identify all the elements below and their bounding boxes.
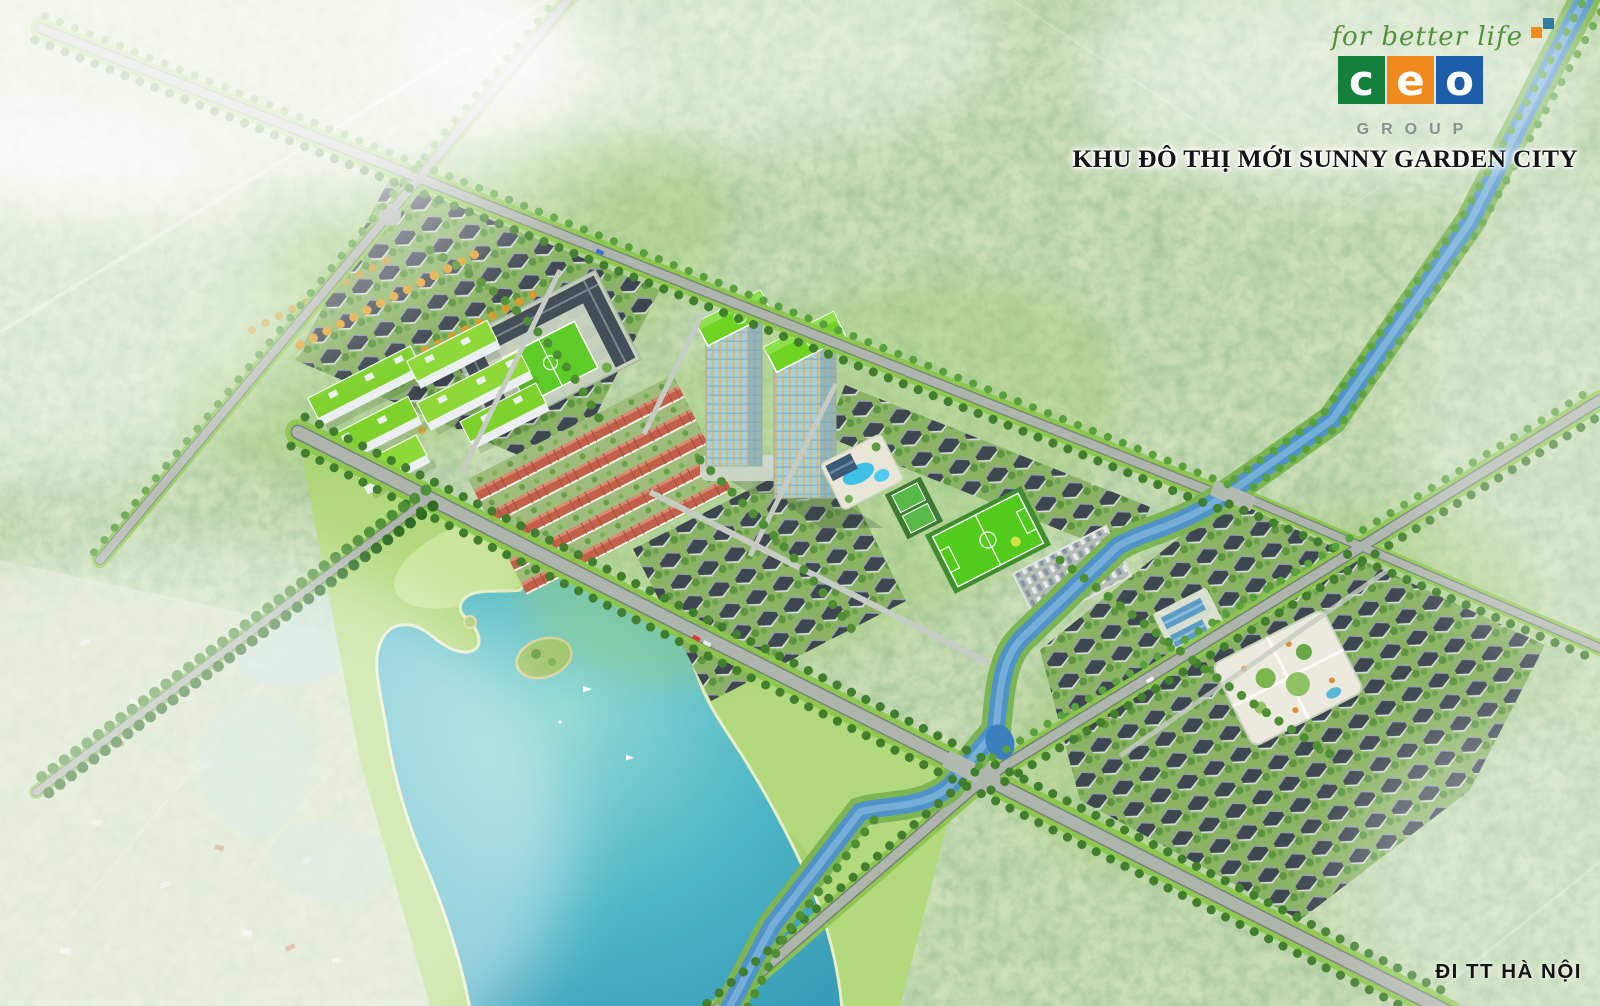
ceo-group-logo: c e o GROUP xyxy=(1338,56,1488,148)
logo-letter-c: c xyxy=(1349,56,1374,105)
slogan-squares-icon xyxy=(1530,18,1556,44)
logo-letter-e: e xyxy=(1396,56,1425,105)
logo-group-label: GROUP xyxy=(1357,121,1476,138)
masterplan-rendering: for better life c e o GROUP KHU ĐÔ THỊ M… xyxy=(0,0,1600,1006)
logo-letter-o: o xyxy=(1445,56,1474,105)
slogan-text: for better life xyxy=(1331,18,1523,50)
road-label-hanoi: ĐI TT HÀ NỘI xyxy=(1435,960,1582,984)
brand-slogan: for better life xyxy=(1331,18,1556,50)
project-title: KHU ĐÔ THỊ MỚI SUNNY GARDEN CITY xyxy=(1073,144,1578,174)
